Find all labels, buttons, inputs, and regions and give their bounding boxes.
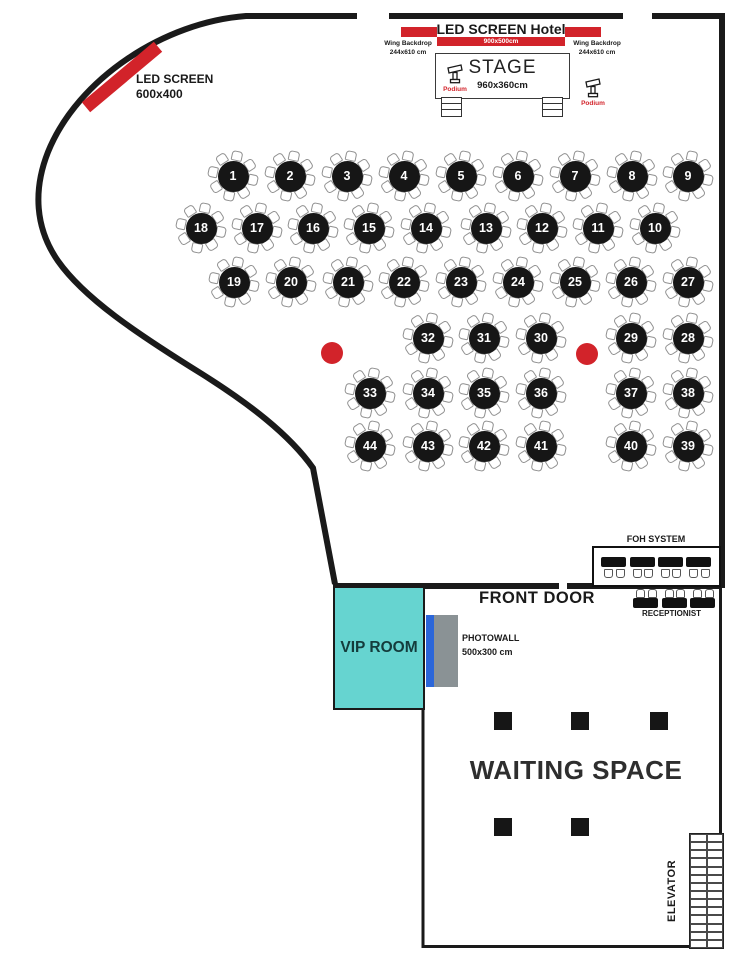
table-22: 22 xyxy=(376,254,432,310)
wing-backdrop-left-label: Wing Backdrop 244x610 cm xyxy=(377,39,439,58)
pillar xyxy=(494,712,512,730)
table-44: 44 xyxy=(342,418,398,474)
table-27: 27 xyxy=(660,254,716,310)
elevator-cell xyxy=(707,932,724,940)
table-number: 23 xyxy=(446,267,477,298)
chair-icon xyxy=(648,589,657,599)
table-number: 16 xyxy=(298,213,329,244)
table-number: 7 xyxy=(560,161,591,192)
table-number: 1 xyxy=(218,161,249,192)
elevator-cell xyxy=(707,915,724,923)
elevator-cell xyxy=(690,875,707,883)
chair-icon xyxy=(645,280,657,293)
podium-left-label: Podium xyxy=(435,86,475,93)
chair-icon xyxy=(361,174,373,187)
chair-icon xyxy=(555,444,567,457)
chair-icon xyxy=(676,589,685,599)
photowall-screen xyxy=(426,615,434,687)
chair-icon xyxy=(677,296,690,308)
table-1: 1 xyxy=(205,148,261,204)
chair-icon xyxy=(644,242,657,254)
table-39: 39 xyxy=(660,418,716,474)
elevator-cell xyxy=(690,850,707,858)
chair-icon xyxy=(247,174,259,187)
chair-icon xyxy=(498,336,510,349)
chair-icon xyxy=(442,336,454,349)
chair-icon xyxy=(702,444,714,457)
table-26: 26 xyxy=(603,254,659,310)
table-number: 24 xyxy=(503,267,534,298)
chair-icon xyxy=(498,391,510,404)
table-number: 30 xyxy=(526,323,557,354)
chair-icon xyxy=(564,296,577,308)
chair-icon xyxy=(645,336,657,349)
elevator-cell xyxy=(690,940,707,948)
table-25: 25 xyxy=(547,254,603,310)
table-18: 18 xyxy=(173,200,229,256)
chair-icon xyxy=(693,589,702,599)
chair-icon xyxy=(473,352,486,364)
table-14: 14 xyxy=(398,200,454,256)
stage-led-screen-size: 900x500cm xyxy=(484,38,519,45)
elevator-cell xyxy=(690,932,707,940)
chair-icon xyxy=(417,352,430,364)
chair-icon xyxy=(531,242,544,254)
pillar xyxy=(571,818,589,836)
wing-backdrop-right-label: Wing Backdrop 244x610 cm xyxy=(566,39,628,58)
table-2: 2 xyxy=(262,148,318,204)
elevator-cell xyxy=(690,915,707,923)
chair-icon xyxy=(612,226,624,239)
chair-icon xyxy=(442,444,454,457)
foh-table xyxy=(601,557,626,567)
chair-icon xyxy=(645,391,657,404)
chair-icon xyxy=(223,296,236,308)
stage-stairs-right xyxy=(542,98,563,117)
chair-icon xyxy=(677,352,690,364)
chair-icon xyxy=(384,444,396,457)
table-number: 13 xyxy=(471,213,502,244)
chair-icon xyxy=(587,242,600,254)
table-20: 20 xyxy=(263,254,319,310)
elevator-cell xyxy=(690,867,707,875)
elevator-cell xyxy=(707,883,724,891)
elevator-cell xyxy=(707,867,724,875)
chair-icon xyxy=(280,296,293,308)
table-number: 28 xyxy=(673,323,704,354)
elevator-cell xyxy=(707,875,724,883)
chair-icon xyxy=(393,296,406,308)
pillar xyxy=(494,818,512,836)
table-11: 11 xyxy=(570,200,626,256)
pillar xyxy=(571,712,589,730)
red-marker-dot xyxy=(576,343,598,365)
table-number: 9 xyxy=(673,161,704,192)
table-7: 7 xyxy=(547,148,603,204)
chair-icon xyxy=(620,352,633,364)
table-number: 25 xyxy=(560,267,591,298)
elevator-cell xyxy=(690,891,707,899)
photowall-label: PHOTOWALL 500x300 cm xyxy=(462,631,552,659)
stage-led-screen-bar: 900x500cm xyxy=(437,37,565,46)
table-43: 43 xyxy=(400,418,456,474)
elevator-cell xyxy=(707,834,724,842)
table-number: 34 xyxy=(413,378,444,409)
chair-icon xyxy=(636,589,645,599)
chair-icon xyxy=(337,296,350,308)
table-23: 23 xyxy=(433,254,489,310)
foh-table xyxy=(686,557,711,567)
chair-icon xyxy=(604,569,613,579)
elevator-label: ELEVATOR xyxy=(666,839,682,943)
table-10: 10 xyxy=(627,200,683,256)
pillar xyxy=(650,712,668,730)
receptionist-table xyxy=(690,598,715,608)
table-number: 12 xyxy=(527,213,558,244)
table-17: 17 xyxy=(229,200,285,256)
chair-icon xyxy=(620,460,633,472)
chair-icon xyxy=(302,242,315,254)
chair-icon xyxy=(440,226,452,239)
table-28: 28 xyxy=(660,310,716,366)
table-number: 18 xyxy=(186,213,217,244)
chair-icon xyxy=(327,226,339,239)
podium-icon xyxy=(447,64,463,84)
foh-system-box xyxy=(592,546,721,587)
table-33: 33 xyxy=(342,365,398,421)
elevator-cell xyxy=(707,850,724,858)
table-5: 5 xyxy=(433,148,489,204)
chair-icon xyxy=(532,174,544,187)
chair-icon xyxy=(358,242,371,254)
photowall-panel xyxy=(434,615,458,687)
chair-icon xyxy=(498,444,510,457)
chair-icon xyxy=(248,280,260,293)
table-number: 44 xyxy=(355,431,386,462)
table-6: 6 xyxy=(490,148,546,204)
chair-icon xyxy=(556,226,568,239)
elevator-cell xyxy=(707,924,724,932)
table-number: 5 xyxy=(446,161,477,192)
table-37: 37 xyxy=(603,365,659,421)
table-19: 19 xyxy=(206,254,262,310)
table-8: 8 xyxy=(604,148,660,204)
table-number: 20 xyxy=(276,267,307,298)
vip-room: VIP ROOM xyxy=(333,586,425,710)
elevator-cell xyxy=(707,940,724,948)
chair-icon xyxy=(665,589,674,599)
wing-backdrop-left-rect xyxy=(401,27,437,37)
wing-backdrop-right-rect xyxy=(565,27,601,37)
table-number: 41 xyxy=(526,431,557,462)
table-29: 29 xyxy=(603,310,659,366)
chair-icon xyxy=(530,460,543,472)
chair-icon xyxy=(415,242,428,254)
chair-icon xyxy=(507,296,520,308)
chair-icon xyxy=(646,174,658,187)
stage-stairs-left xyxy=(441,98,462,117)
table-number: 43 xyxy=(413,431,444,462)
table-15: 15 xyxy=(341,200,397,256)
walls-outline xyxy=(0,0,750,964)
table-number: 17 xyxy=(242,213,273,244)
chair-icon xyxy=(701,569,710,579)
chair-icon xyxy=(418,280,430,293)
table-number: 2 xyxy=(275,161,306,192)
chair-icon xyxy=(702,391,714,404)
table-number: 40 xyxy=(616,431,647,462)
elevator-cell xyxy=(690,899,707,907)
chair-icon xyxy=(530,352,543,364)
chair-icon xyxy=(532,280,544,293)
chair-icon xyxy=(672,569,681,579)
elevator-cell xyxy=(707,907,724,915)
chair-icon xyxy=(190,242,203,254)
red-marker-dot xyxy=(321,342,343,364)
table-number: 6 xyxy=(503,161,534,192)
table-36: 36 xyxy=(513,365,569,421)
side-led-screen-label: LED SCREEN 600x400 xyxy=(136,72,226,101)
podium-icon xyxy=(585,78,601,98)
vip-room-label: VIP ROOM xyxy=(340,639,417,657)
table-13: 13 xyxy=(458,200,514,256)
table-number: 15 xyxy=(354,213,385,244)
elevator-cell xyxy=(707,891,724,899)
table-number: 19 xyxy=(219,267,250,298)
chair-icon xyxy=(362,280,374,293)
chair-icon xyxy=(475,280,487,293)
table-12: 12 xyxy=(514,200,570,256)
chair-icon xyxy=(689,569,698,579)
table-number: 22 xyxy=(389,267,420,298)
chair-icon xyxy=(450,296,463,308)
foh-system-label: FOH SYSTEM xyxy=(596,534,716,544)
chair-icon xyxy=(702,280,714,293)
table-30: 30 xyxy=(513,310,569,366)
event-floor-plan: LED SCREEN Hotel 900x500cm Wing Backdrop… xyxy=(0,0,750,964)
elevator-cell xyxy=(690,924,707,932)
table-number: 42 xyxy=(469,431,500,462)
chair-icon xyxy=(500,226,512,239)
table-number: 38 xyxy=(673,378,704,409)
chair-icon xyxy=(620,296,633,308)
chair-icon xyxy=(215,226,227,239)
table-31: 31 xyxy=(456,310,512,366)
table-number: 37 xyxy=(616,378,647,409)
chair-icon xyxy=(661,569,670,579)
chair-icon xyxy=(473,460,486,472)
table-40: 40 xyxy=(603,418,659,474)
receptionist-table xyxy=(633,598,658,608)
table-34: 34 xyxy=(400,365,456,421)
receptionist-label: RECEPTIONIST xyxy=(611,609,732,618)
chair-icon xyxy=(589,280,601,293)
table-38: 38 xyxy=(660,365,716,421)
table-number: 32 xyxy=(413,323,444,354)
chair-icon xyxy=(475,174,487,187)
waiting-space-label: WAITING SPACE xyxy=(430,755,722,786)
chair-icon xyxy=(555,391,567,404)
table-number: 27 xyxy=(673,267,704,298)
chair-icon xyxy=(305,280,317,293)
elevator-cell xyxy=(690,858,707,866)
table-number: 14 xyxy=(411,213,442,244)
chair-icon xyxy=(645,444,657,457)
chair-icon xyxy=(442,391,454,404)
chair-icon xyxy=(702,336,714,349)
table-24: 24 xyxy=(490,254,546,310)
table-41: 41 xyxy=(513,418,569,474)
chair-icon xyxy=(475,242,488,254)
table-number: 33 xyxy=(355,378,386,409)
table-number: 8 xyxy=(617,161,648,192)
chair-icon xyxy=(616,569,625,579)
table-16: 16 xyxy=(285,200,341,256)
elevator-shaft-grid xyxy=(689,833,724,949)
elevator-cell xyxy=(690,834,707,842)
table-number: 11 xyxy=(583,213,614,244)
table-number: 4 xyxy=(389,161,420,192)
elevator-cell xyxy=(707,842,724,850)
chair-icon xyxy=(555,336,567,349)
chair-icon xyxy=(633,569,642,579)
chair-icon xyxy=(384,391,396,404)
table-9: 9 xyxy=(660,148,716,204)
chair-icon xyxy=(246,242,259,254)
chair-icon xyxy=(669,226,681,239)
table-number: 31 xyxy=(469,323,500,354)
podium-right-label: Podium xyxy=(573,100,613,107)
table-number: 26 xyxy=(616,267,647,298)
foh-table xyxy=(658,557,683,567)
table-number: 35 xyxy=(469,378,500,409)
elevator-cell xyxy=(707,899,724,907)
front-door-label: FRONT DOOR xyxy=(457,589,617,608)
chair-icon xyxy=(705,589,714,599)
chair-icon xyxy=(677,460,690,472)
table-32: 32 xyxy=(400,310,456,366)
chair-icon xyxy=(383,226,395,239)
receptionist-table xyxy=(662,598,687,608)
table-number: 36 xyxy=(526,378,557,409)
chair-icon xyxy=(589,174,601,187)
chair-icon xyxy=(418,174,430,187)
chair-icon xyxy=(271,226,283,239)
table-4: 4 xyxy=(376,148,432,204)
table-number: 29 xyxy=(616,323,647,354)
table-35: 35 xyxy=(456,365,512,421)
chair-icon xyxy=(417,460,430,472)
table-number: 21 xyxy=(333,267,364,298)
elevator-cell xyxy=(707,858,724,866)
table-number: 3 xyxy=(332,161,363,192)
table-21: 21 xyxy=(320,254,376,310)
elevator-cell xyxy=(690,842,707,850)
foh-table xyxy=(630,557,655,567)
elevator-cell xyxy=(690,907,707,915)
chair-icon xyxy=(644,569,653,579)
table-number: 10 xyxy=(640,213,671,244)
table-42: 42 xyxy=(456,418,512,474)
chair-icon xyxy=(304,174,316,187)
chair-icon xyxy=(702,174,714,187)
table-number: 39 xyxy=(673,431,704,462)
table-3: 3 xyxy=(319,148,375,204)
chair-icon xyxy=(359,460,372,472)
elevator-cell xyxy=(690,883,707,891)
